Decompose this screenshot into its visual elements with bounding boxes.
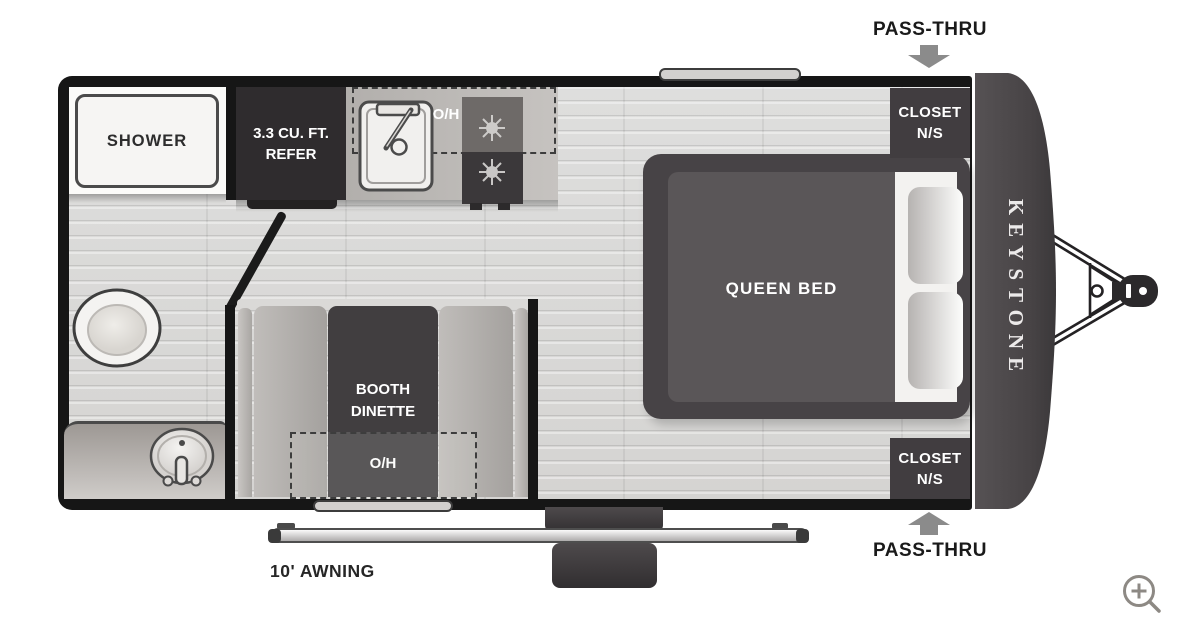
hitch-coupler-icon (1112, 275, 1158, 307)
floorplan-canvas: PASS-THRU SHOWER 3.3 CU. FT. REFER (0, 0, 1200, 644)
awning-bar (271, 528, 808, 543)
overhead-cabinet-dinette (290, 432, 477, 499)
pass-thru-arrow-down-icon (908, 45, 950, 68)
queen-bed-label: QUEEN BED (668, 279, 895, 299)
toilet (70, 286, 166, 372)
awning-label: 10' AWNING (270, 561, 375, 582)
closet-top: CLOSET N/S (890, 88, 970, 158)
awning-end-right (796, 529, 809, 543)
window-bottom (313, 500, 453, 512)
pass-thru-arrow-up-icon (908, 512, 950, 535)
pillow (908, 292, 963, 389)
front-cap (960, 60, 1200, 520)
kitchen-overhead-label: O/H (424, 106, 468, 123)
wall-dinette (528, 299, 538, 499)
closet-top-line1: CLOSET (898, 102, 961, 123)
zoom-in-icon[interactable] (1118, 570, 1170, 622)
pass-thru-bottom-label: PASS-THRU (850, 540, 1010, 562)
wall-shower (226, 87, 236, 200)
shower-pan: SHOWER (75, 94, 219, 188)
dinette-label-line2: DINETTE (328, 402, 438, 422)
refer-label-line2: REFER (266, 144, 317, 165)
closet-bottom-line2: N/S (917, 469, 943, 490)
window-top (659, 68, 801, 81)
dinette-armrest-right (515, 308, 528, 497)
closet-top-line2: N/S (917, 123, 943, 144)
kitchen-sink (358, 100, 434, 192)
pass-thru-top-label: PASS-THRU (850, 19, 1010, 41)
pillow (908, 187, 963, 284)
refrigerator-base (247, 200, 337, 209)
brand-label: KEYSTONE (1004, 179, 1028, 399)
bathroom-sink (64, 421, 226, 499)
awning-end-left (268, 529, 281, 543)
shower-room: SHOWER (69, 87, 227, 194)
dinette-armrest-left (238, 308, 252, 497)
wall-bathroom (225, 305, 235, 499)
dinette-label-line1: BOOTH (328, 380, 438, 400)
closet-bottom: CLOSET N/S (890, 438, 970, 499)
shower-label: SHOWER (107, 132, 187, 151)
stove-burner-icon (462, 97, 523, 204)
entry-step-lower (552, 543, 657, 588)
closet-bottom-line1: CLOSET (898, 448, 961, 469)
stove (462, 97, 523, 204)
refer-label-line1: 3.3 CU. FT. (253, 123, 329, 144)
refrigerator: 3.3 CU. FT. REFER (236, 87, 346, 200)
shower-shadow (69, 194, 226, 203)
